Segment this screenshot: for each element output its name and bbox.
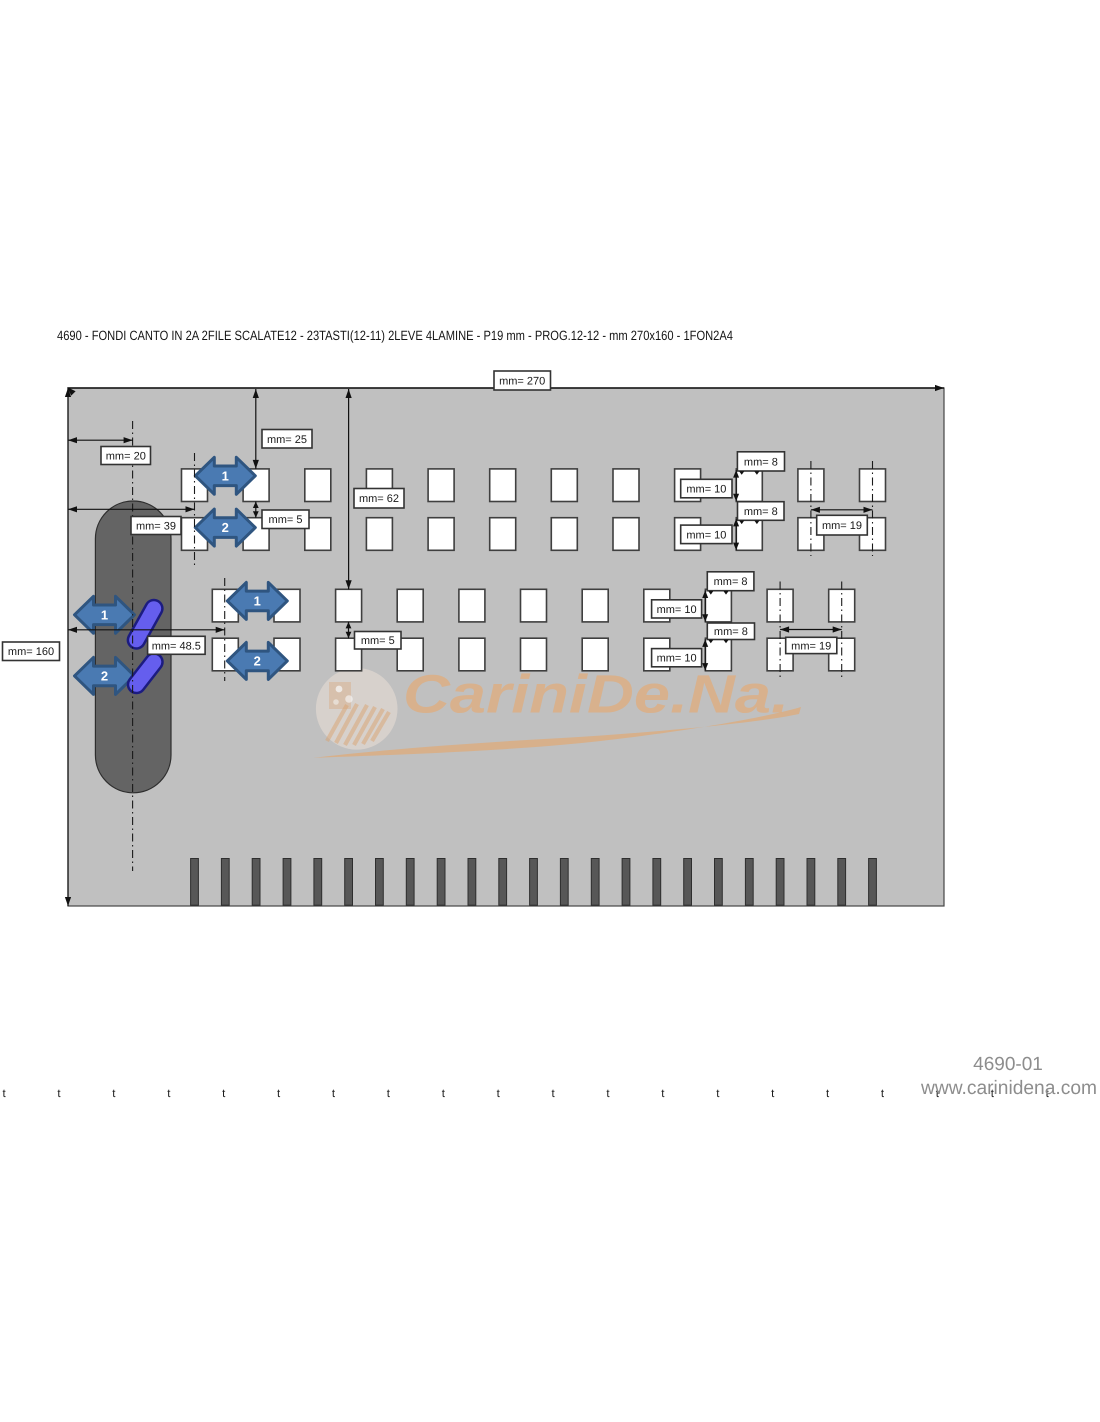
- svg-text:1: 1: [101, 607, 108, 622]
- svg-text:4690 - FONDI CANTO IN 2A 2FILE: 4690 - FONDI CANTO IN 2A 2FILE SCALATE12…: [57, 328, 733, 343]
- svg-text:mm= 8: mm= 8: [744, 456, 778, 468]
- svg-text:mm= 10: mm= 10: [686, 529, 726, 541]
- svg-text:t: t: [716, 1088, 720, 1100]
- svg-text:mm= 5: mm= 5: [269, 514, 303, 526]
- svg-text:CariniDe.Na.: CariniDe.Na.: [403, 665, 789, 725]
- svg-text:mm= 8: mm= 8: [744, 506, 778, 518]
- svg-text:t: t: [332, 1088, 336, 1100]
- svg-text:2: 2: [101, 669, 108, 684]
- svg-text:1: 1: [222, 468, 229, 483]
- svg-text:t: t: [881, 1088, 885, 1100]
- svg-text:www.carinidena.com: www.carinidena.com: [920, 1077, 1097, 1099]
- svg-text:2: 2: [222, 520, 229, 535]
- svg-text:mm= 10: mm= 10: [686, 484, 726, 496]
- svg-text:mm= 39: mm= 39: [136, 521, 176, 533]
- svg-text:4690-01: 4690-01: [973, 1054, 1043, 1075]
- svg-text:mm= 20: mm= 20: [106, 451, 146, 463]
- svg-text:t: t: [277, 1088, 281, 1100]
- svg-text:t: t: [661, 1088, 665, 1100]
- svg-text:mm= 19: mm= 19: [822, 520, 862, 532]
- svg-text:2: 2: [254, 654, 261, 669]
- svg-text:mm= 8: mm= 8: [714, 626, 748, 638]
- svg-text:t: t: [442, 1088, 446, 1100]
- svg-text:1: 1: [254, 594, 261, 609]
- svg-text:t: t: [606, 1088, 610, 1100]
- svg-text:t: t: [167, 1088, 171, 1100]
- svg-text:t: t: [552, 1088, 556, 1100]
- svg-text:t: t: [3, 1088, 7, 1100]
- svg-text:mm= 160: mm= 160: [8, 646, 54, 658]
- svg-text:mm= 25: mm= 25: [267, 434, 307, 446]
- svg-text:t: t: [57, 1088, 61, 1100]
- svg-text:t: t: [387, 1088, 391, 1100]
- svg-text:t: t: [222, 1088, 226, 1100]
- svg-text:mm= 62: mm= 62: [359, 493, 399, 505]
- svg-text:mm= 19: mm= 19: [791, 640, 831, 652]
- svg-text:mm= 10: mm= 10: [657, 604, 697, 616]
- svg-text:mm= 5: mm= 5: [361, 635, 395, 647]
- svg-text:t: t: [112, 1088, 116, 1100]
- svg-text:mm= 8: mm= 8: [714, 576, 748, 588]
- svg-text:t: t: [497, 1088, 501, 1100]
- svg-text:t: t: [771, 1088, 775, 1100]
- svg-text:mm= 270: mm= 270: [499, 376, 545, 388]
- svg-text:mm= 10: mm= 10: [657, 653, 697, 665]
- svg-text:t: t: [826, 1088, 830, 1100]
- svg-text:mm= 48.5: mm= 48.5: [152, 640, 201, 652]
